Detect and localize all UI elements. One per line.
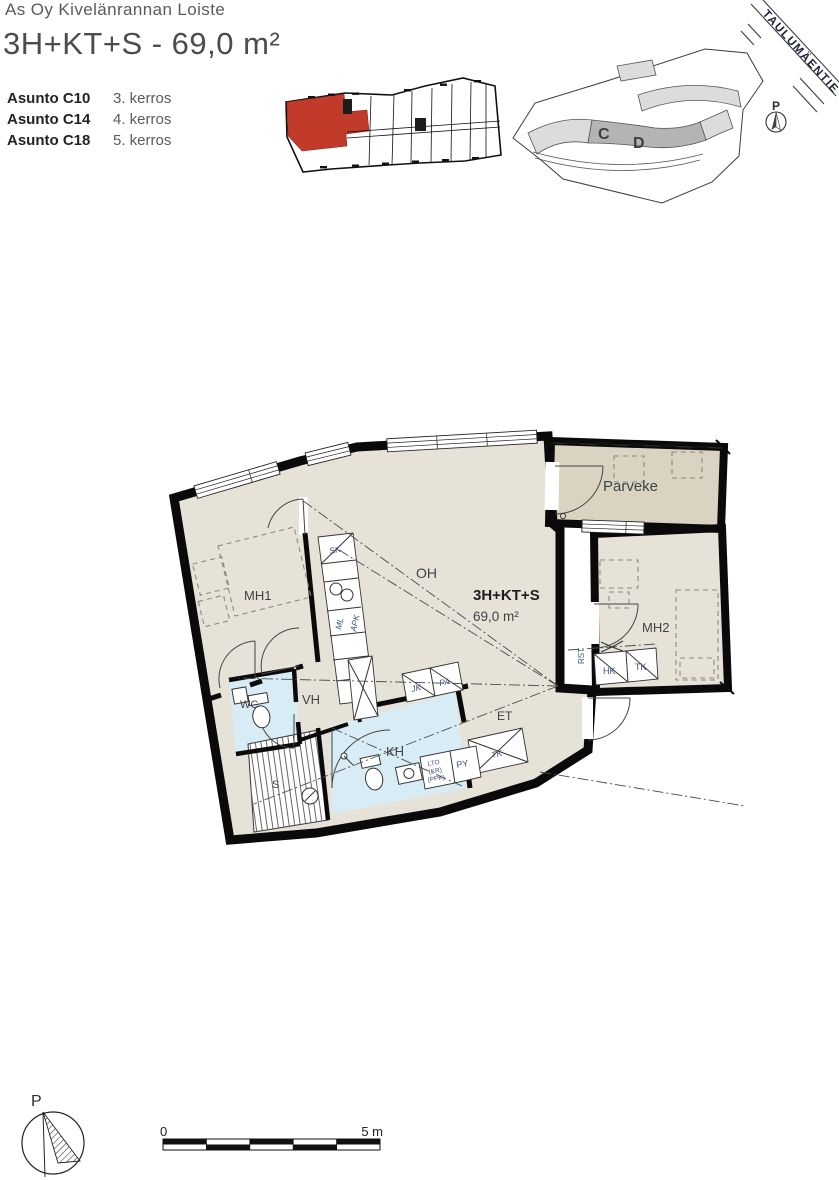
north-arrow-icon (22, 1112, 84, 1177)
fixture-label-tk: TK (635, 662, 647, 672)
room-label-parveke: Parveke (603, 478, 658, 495)
fixture-label-hk: HK (603, 666, 616, 676)
site-north-indicator-icon: P (766, 99, 786, 132)
apartment-row: Asunto C18 5. kerros (7, 130, 171, 151)
scale-bar-segments (163, 1139, 380, 1150)
building-d-label: D (633, 135, 645, 152)
apartment-row: Asunto C14 4. kerros (7, 109, 171, 130)
north-compass: P (12, 1085, 102, 1180)
window (582, 520, 644, 534)
apartment-row: Asunto C10 3. kerros (7, 88, 171, 109)
apartment-floor: 4. kerros (113, 111, 171, 128)
room-label-vh: VH (302, 692, 320, 707)
room-label-et: ET (497, 709, 513, 723)
apartment-unit: Asunto C14 (7, 111, 113, 128)
room-label-wc: WC (240, 699, 258, 711)
site-buildings (528, 60, 741, 171)
plan-type-label: 3H+KT+S (473, 587, 540, 604)
compass-north-label: P (31, 1093, 42, 1110)
plan-area-label: 69,0 m² (473, 609, 519, 624)
apartment-unit: Asunto C18 (7, 132, 113, 149)
apartment-unit: Asunto C10 (7, 90, 113, 107)
scale-start-label: 0 (160, 1124, 167, 1139)
room-label-kh: KH (386, 744, 404, 759)
scale-bar: 0 5 m (150, 1115, 395, 1160)
main-floor-plan: MH1 OH 3H+KT+S 69,0 m² Parveke MH2 VH WC… (140, 410, 780, 870)
fixture-label-py: PY (456, 758, 470, 770)
scale-end-label: 5 m (361, 1124, 383, 1139)
fixture-label-rst: RST (577, 648, 586, 664)
apartment-floor: 5. kerros (113, 132, 171, 149)
street-lines (741, 0, 839, 112)
room-label-s: S (272, 779, 279, 791)
site-north-label: P (772, 99, 780, 113)
apartment-list: Asunto C10 3. kerros Asunto C14 4. kerro… (7, 88, 171, 151)
site-plan: C D TAULUMÄENTIE P (505, 0, 839, 240)
floor-plan-sheet: { "header": { "project_name": "As Oy Kiv… (0, 0, 839, 1180)
street-name-label: TAULUMÄENTIE (760, 7, 839, 96)
building-overview-plan (280, 58, 512, 198)
room-label-oh: OH (416, 565, 437, 581)
project-name: As Oy Kivelänrannan Loiste (5, 0, 225, 20)
room-label-mh1: MH1 (244, 588, 271, 603)
apartment-floor: 3. kerros (113, 90, 171, 107)
building-c-label: C (598, 126, 610, 143)
page-title: 3H+KT+S - 69,0 m² (3, 26, 280, 62)
room-label-mh2: MH2 (642, 620, 669, 635)
